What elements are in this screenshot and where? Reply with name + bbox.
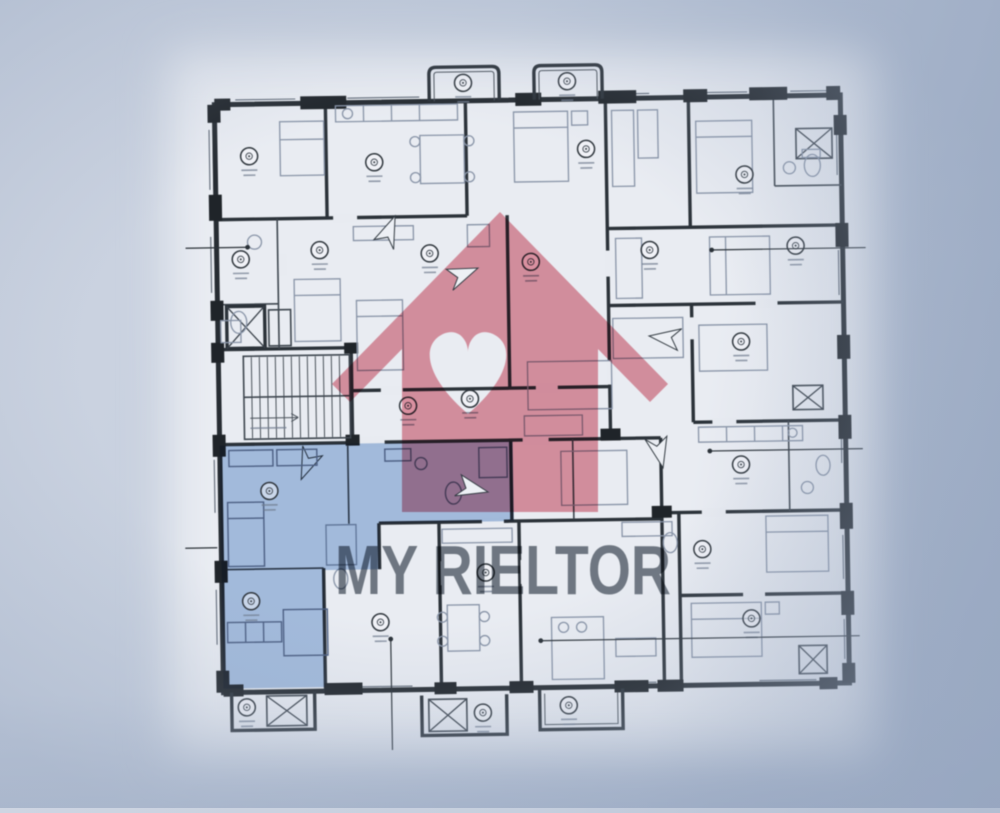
floor-plan-photo: MY RIELTOR	[0, 0, 1000, 808]
floorplan-screenshot: { "image": { "kind": "apartment-floor-pl…	[0, 0, 1000, 808]
floor-plan-image: MY RIELTOR	[0, 0, 1000, 808]
watermark-text: MY RIELTOR	[335, 531, 671, 609]
